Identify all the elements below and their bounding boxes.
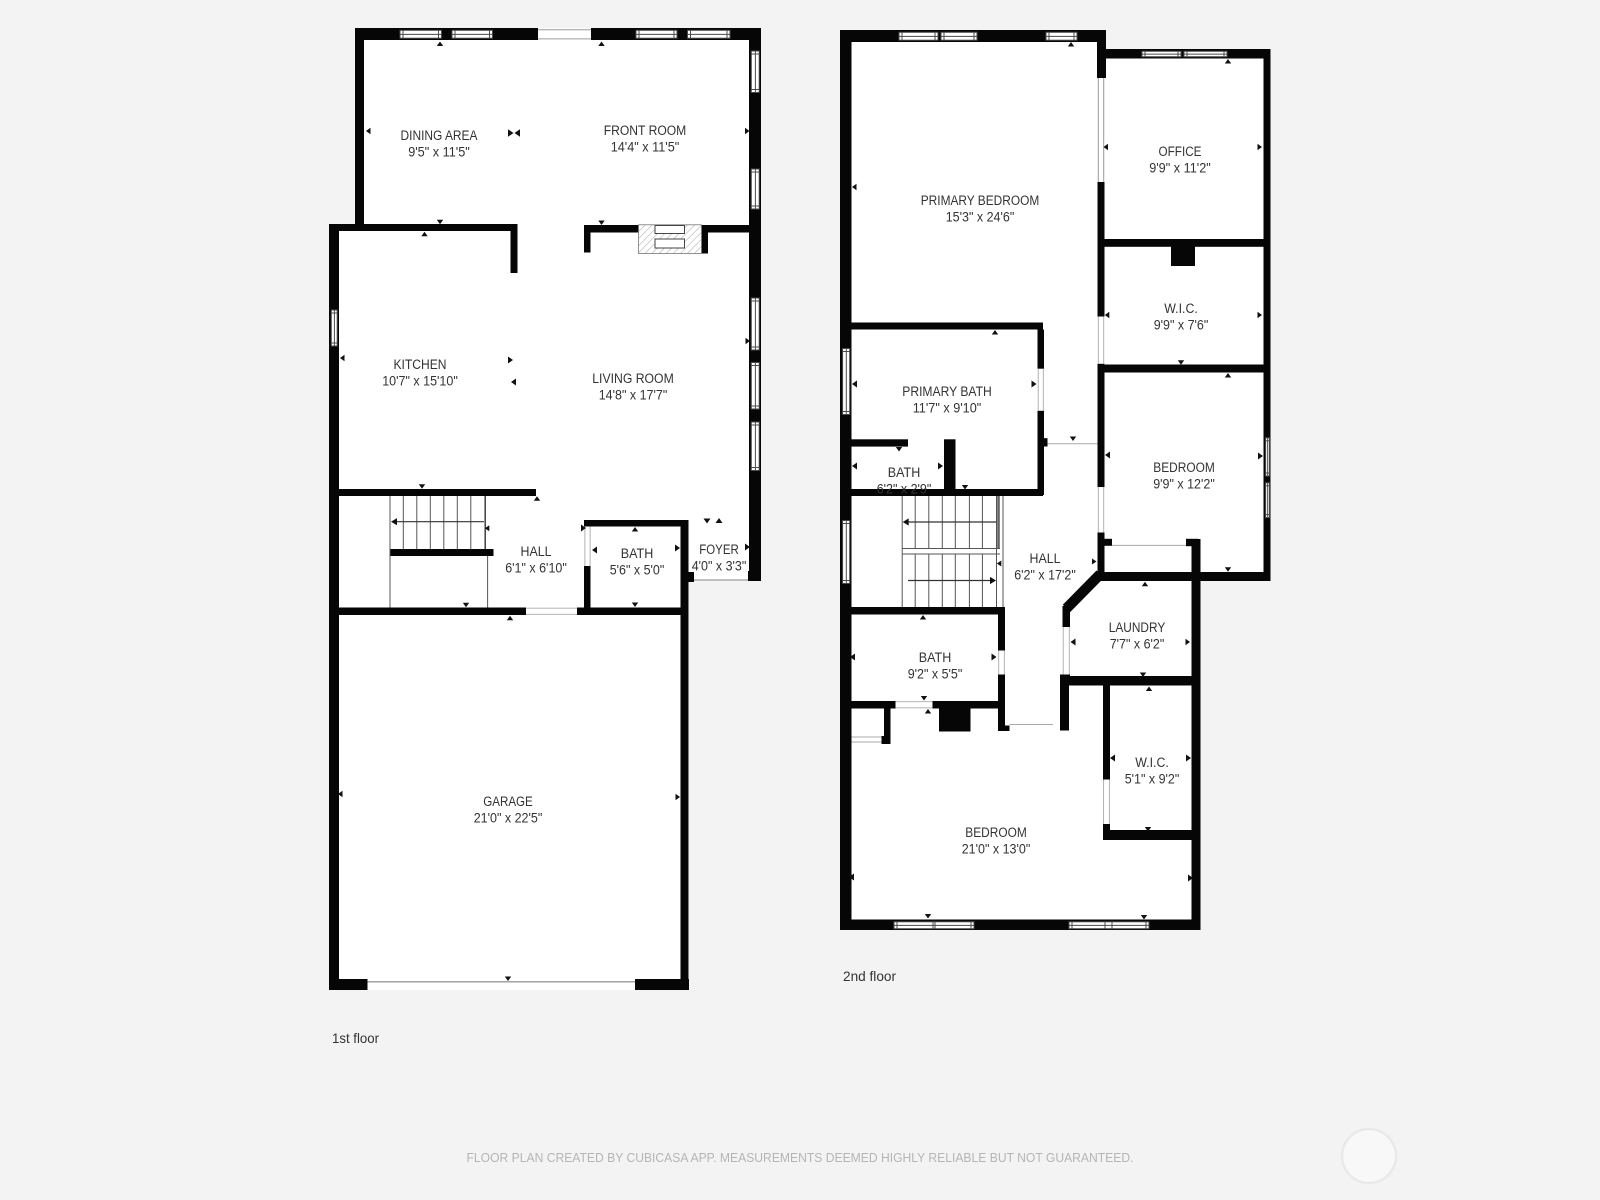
svg-text:15'3" x 24'6": 15'3" x 24'6": [946, 210, 1015, 225]
svg-text:21'0" x 13'0": 21'0" x 13'0": [962, 842, 1031, 857]
svg-text:PRIMARY BATH: PRIMARY BATH: [902, 384, 992, 399]
svg-text:5'1" x 9'2": 5'1" x 9'2": [1125, 772, 1180, 787]
svg-text:6'2" x 2'9": 6'2" x 2'9": [877, 482, 932, 497]
svg-text:BATH: BATH: [621, 546, 654, 561]
svg-text:21'0" x 22'5": 21'0" x 22'5": [474, 811, 543, 826]
svg-text:9'9" x 11'2": 9'9" x 11'2": [1149, 161, 1211, 176]
svg-text:OFFICE: OFFICE: [1159, 144, 1202, 159]
svg-text:6'1" x 6'10": 6'1" x 6'10": [505, 561, 567, 576]
svg-text:2nd floor: 2nd floor: [843, 968, 896, 984]
svg-text:4'0" x 3'3": 4'0" x 3'3": [692, 559, 747, 574]
svg-text:KITCHEN: KITCHEN: [394, 357, 447, 372]
svg-text:PRIMARY BEDROOM: PRIMARY BEDROOM: [921, 193, 1040, 208]
svg-text:9'9" x 12'2": 9'9" x 12'2": [1153, 477, 1215, 492]
svg-text:9'9" x 7'6": 9'9" x 7'6": [1154, 318, 1209, 333]
svg-text:9'5" x 11'5": 9'5" x 11'5": [408, 145, 470, 160]
svg-text:14'8" x 17'7": 14'8" x 17'7": [599, 388, 668, 403]
svg-text:W.I.C.: W.I.C.: [1135, 755, 1169, 770]
svg-text:FOYER: FOYER: [699, 542, 739, 557]
svg-text:6'2" x 17'2": 6'2" x 17'2": [1014, 568, 1076, 583]
svg-text:11'7" x 9'10": 11'7" x 9'10": [913, 401, 982, 416]
svg-text:1st floor: 1st floor: [332, 1030, 379, 1046]
svg-text:9'2" x 5'5": 9'2" x 5'5": [908, 667, 963, 682]
svg-text:FRONT ROOM: FRONT ROOM: [604, 123, 687, 138]
svg-text:FLOOR PLAN CREATED BY CUBICASA: FLOOR PLAN CREATED BY CUBICASA APP. MEAS…: [467, 1150, 1134, 1165]
svg-text:14'4" x 11'5": 14'4" x 11'5": [611, 140, 680, 155]
svg-text:BATH: BATH: [888, 465, 921, 480]
svg-text:5'6" x 5'0": 5'6" x 5'0": [610, 563, 665, 578]
svg-text:10'7" x 15'10": 10'7" x 15'10": [382, 374, 458, 389]
svg-text:LAUNDRY: LAUNDRY: [1109, 620, 1166, 635]
svg-text:HALL: HALL: [521, 544, 552, 559]
svg-text:DINING AREA: DINING AREA: [401, 128, 478, 143]
svg-text:W.I.C.: W.I.C.: [1164, 301, 1198, 316]
svg-text:LIVING ROOM: LIVING ROOM: [592, 371, 674, 386]
svg-text:GARAGE: GARAGE: [483, 794, 533, 809]
svg-text:HALL: HALL: [1030, 551, 1061, 566]
svg-text:BEDROOM: BEDROOM: [965, 825, 1027, 840]
svg-text:BATH: BATH: [919, 650, 952, 665]
svg-text:7'7" x 6'2": 7'7" x 6'2": [1110, 637, 1165, 652]
svg-text:BEDROOM: BEDROOM: [1153, 460, 1215, 475]
